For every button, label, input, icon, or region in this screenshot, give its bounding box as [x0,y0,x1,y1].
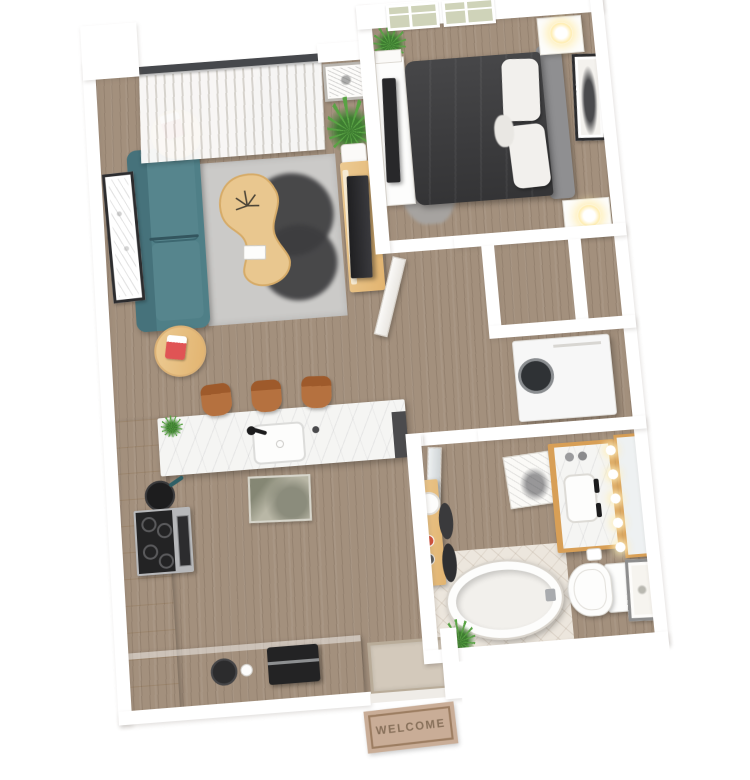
bed-pillow-1 [501,58,541,121]
page-background: { "scene": { "type": "3d-rendered-one-be… [0,0,750,750]
coffee-maker [267,644,321,685]
bedroom-window-2 [442,0,496,27]
art-floral-sketch [327,66,364,97]
living-tv [347,175,373,278]
snack-box-south [165,335,188,360]
bedroom-planter [374,49,402,64]
washer-drum-door [516,357,555,395]
washer-control-line [553,341,601,348]
sofa-seat-cushion-2 [152,240,204,321]
vertical-blinds [139,63,325,164]
kitchen-floor-mat [248,474,312,523]
bedroom-window-1 [386,1,440,31]
toilet-seat-line [572,568,608,612]
art-sketch [108,178,139,297]
kitchen-sink [251,421,306,465]
bathtub-faucet [545,588,556,601]
oven-window [176,515,191,567]
bar-stool-3 [301,376,332,409]
sofa-seat-cushion-1 [147,156,200,244]
wall-nw-corner-block [80,22,139,80]
range-stove [133,507,194,577]
washer-dryer [512,334,617,423]
welcome-mat-text: WELCOME [363,701,458,753]
welcome-mat: WELCOME [363,701,458,753]
outside-mask [459,645,679,753]
floor-plan: WELCOME [80,0,679,780]
toilet-paper [586,548,602,561]
sink-drain [276,440,285,449]
bar-stool-2 [250,379,282,413]
table-card [244,246,266,260]
